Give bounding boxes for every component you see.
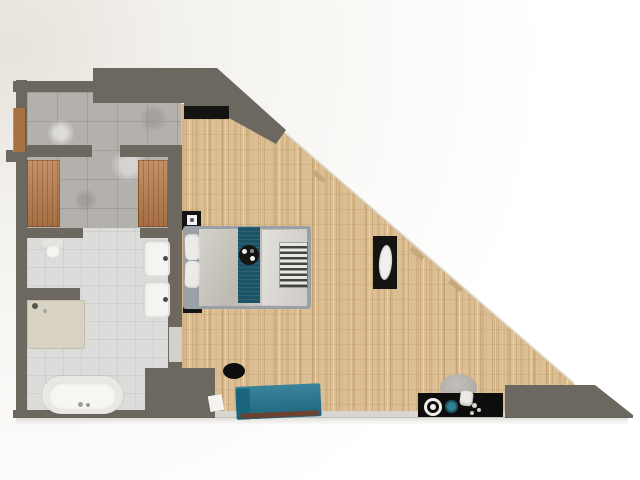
bathroom-pocket-door bbox=[169, 327, 182, 362]
wardrobe-left bbox=[27, 160, 60, 227]
sink-faucet-1 bbox=[163, 256, 168, 261]
tray-cup-1 bbox=[242, 249, 247, 254]
tv bbox=[184, 106, 229, 119]
pillow-1 bbox=[185, 234, 201, 261]
wall-divider-entry-left bbox=[25, 145, 92, 157]
tray-cup-2 bbox=[250, 256, 255, 261]
bed-runner bbox=[238, 227, 260, 303]
sofa bbox=[235, 383, 321, 420]
wardrobe-right bbox=[138, 160, 168, 227]
floor-mat bbox=[208, 394, 225, 412]
plan-shadow bbox=[16, 417, 628, 425]
pillow-2 bbox=[185, 261, 201, 289]
bed-foot-bench bbox=[280, 243, 307, 287]
floorplan-render bbox=[0, 0, 640, 480]
front-door bbox=[13, 108, 26, 152]
toilet-bowl bbox=[46, 245, 60, 258]
bathtub-drain bbox=[86, 403, 90, 407]
counter-item-1 bbox=[472, 403, 477, 408]
wall-corner-block bbox=[145, 368, 215, 418]
breakfast-tray bbox=[239, 245, 259, 265]
shower-head bbox=[32, 303, 38, 309]
nightstand-lamp-dot-1 bbox=[190, 218, 194, 222]
plate-center bbox=[430, 404, 436, 410]
wall-divider-bathroom-right bbox=[140, 228, 182, 238]
shower-drain bbox=[43, 309, 47, 313]
counter-item-2 bbox=[477, 408, 481, 412]
pouf bbox=[223, 363, 245, 379]
sink-faucet-2 bbox=[163, 297, 168, 302]
bathtub-faucet bbox=[78, 402, 83, 407]
bowl bbox=[445, 400, 458, 413]
counter-item-3 bbox=[470, 411, 474, 415]
tray-cup-3 bbox=[250, 249, 254, 253]
wall-shower-partition bbox=[25, 288, 80, 300]
wall-divider-bathroom-left bbox=[25, 228, 83, 238]
